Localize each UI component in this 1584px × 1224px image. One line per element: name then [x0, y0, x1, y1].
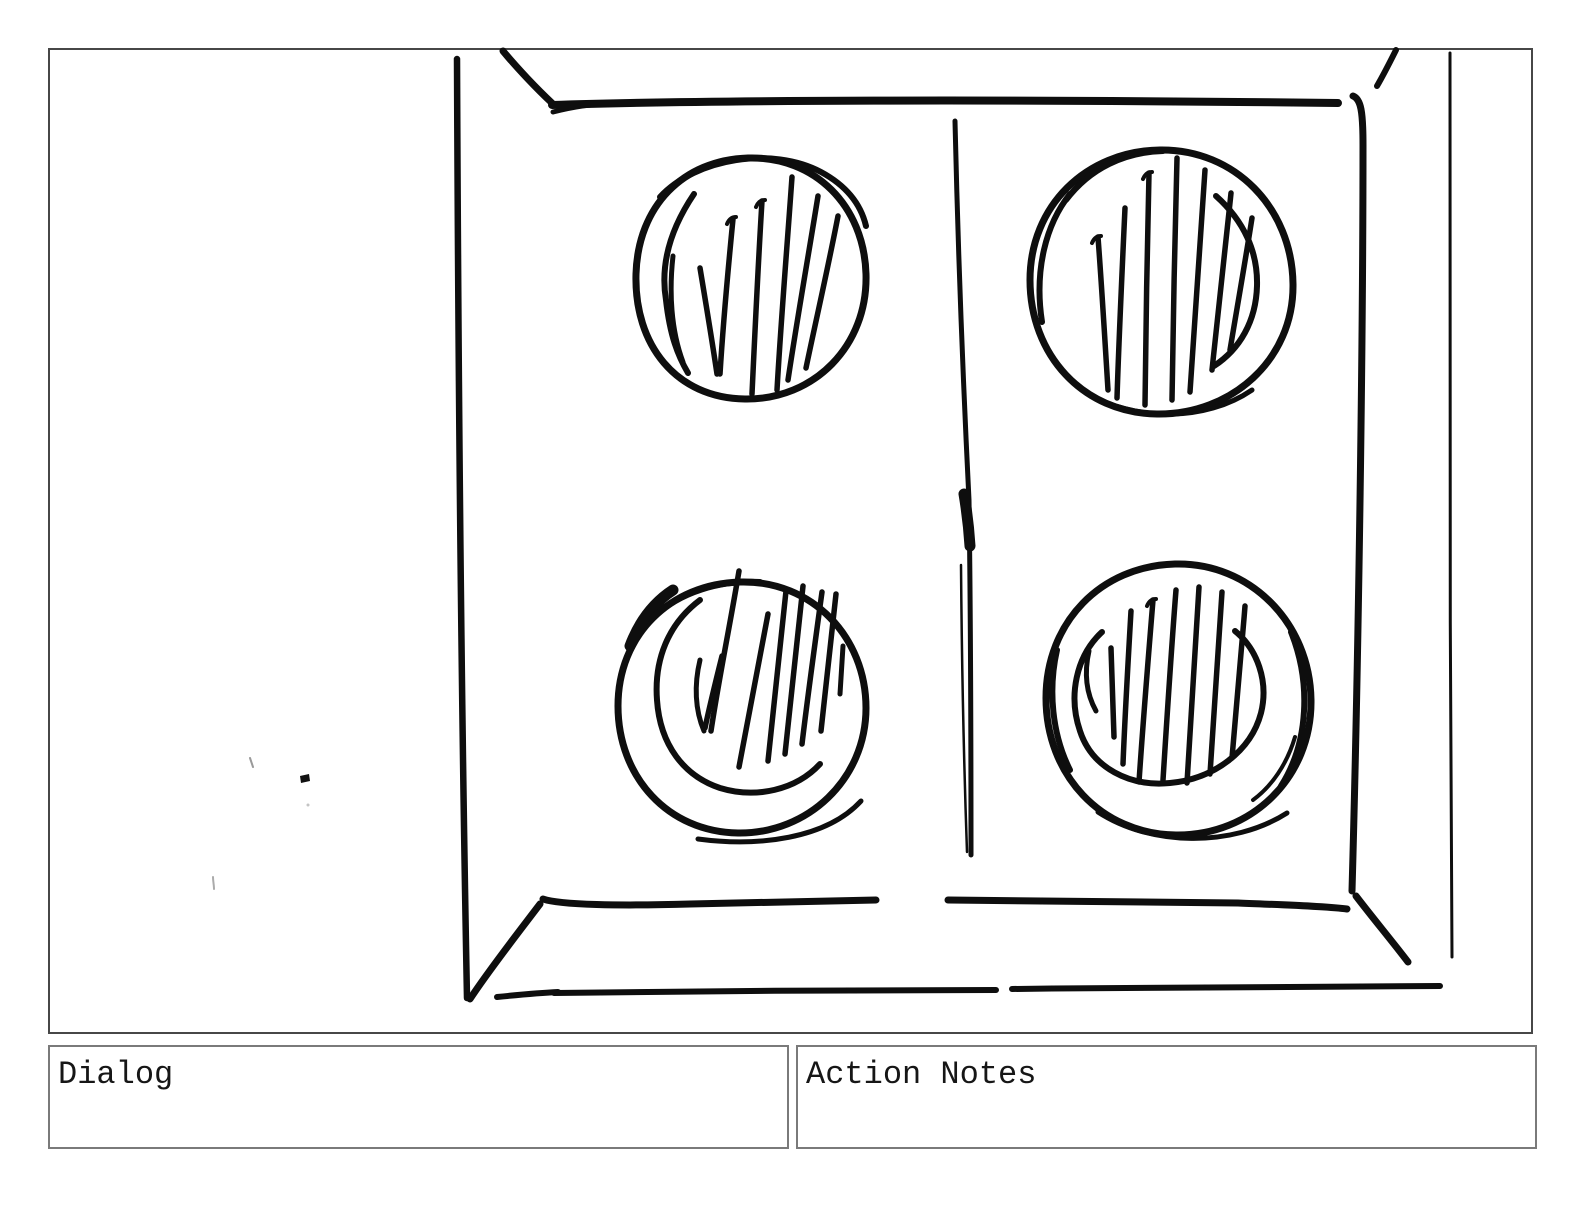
- frame-outer-bottom-right: [1012, 986, 1440, 989]
- frame-outer-right-line: [1450, 53, 1452, 957]
- frame-center-divider-double: [961, 565, 967, 852]
- circle-top-left: [636, 158, 866, 399]
- sketch-canvas[interactable]: [0, 0, 1584, 1224]
- frame-miter-top-right: [1377, 50, 1396, 86]
- frame-inner-top-line: [552, 101, 1338, 105]
- window-frame-sketch: [457, 50, 1452, 999]
- action-notes-label: Action Notes: [798, 1047, 1535, 1094]
- frame-center-divider-blob: [964, 494, 970, 546]
- frame-inner-bottom-right: [948, 900, 1347, 909]
- frame-miter-top-left: [503, 51, 552, 103]
- faint-tick-1: [250, 758, 253, 767]
- stray-ink-marks: [213, 758, 310, 889]
- faint-speck: [307, 804, 310, 807]
- circle-top-right: [1030, 150, 1293, 414]
- faint-tick-2: [213, 877, 214, 889]
- frame-inner-bottom-left: [543, 899, 876, 905]
- dialog-box[interactable]: Dialog: [48, 1045, 789, 1149]
- ink-dot: [300, 774, 310, 783]
- dialog-label: Dialog: [50, 1047, 787, 1094]
- frame-outer-left-line: [457, 59, 467, 998]
- frame-miter-bottom-left: [470, 904, 540, 999]
- frame-inner-right-line: [1352, 96, 1363, 891]
- frame-miter-bottom-right: [1356, 896, 1408, 962]
- frame-outer-bottom-stub: [497, 992, 558, 997]
- circle-bottom-right: [1046, 564, 1311, 838]
- action-notes-box[interactable]: Action Notes: [796, 1045, 1537, 1149]
- frame-outer-bottom-main: [554, 990, 996, 993]
- circle-bottom-left: [618, 571, 866, 842]
